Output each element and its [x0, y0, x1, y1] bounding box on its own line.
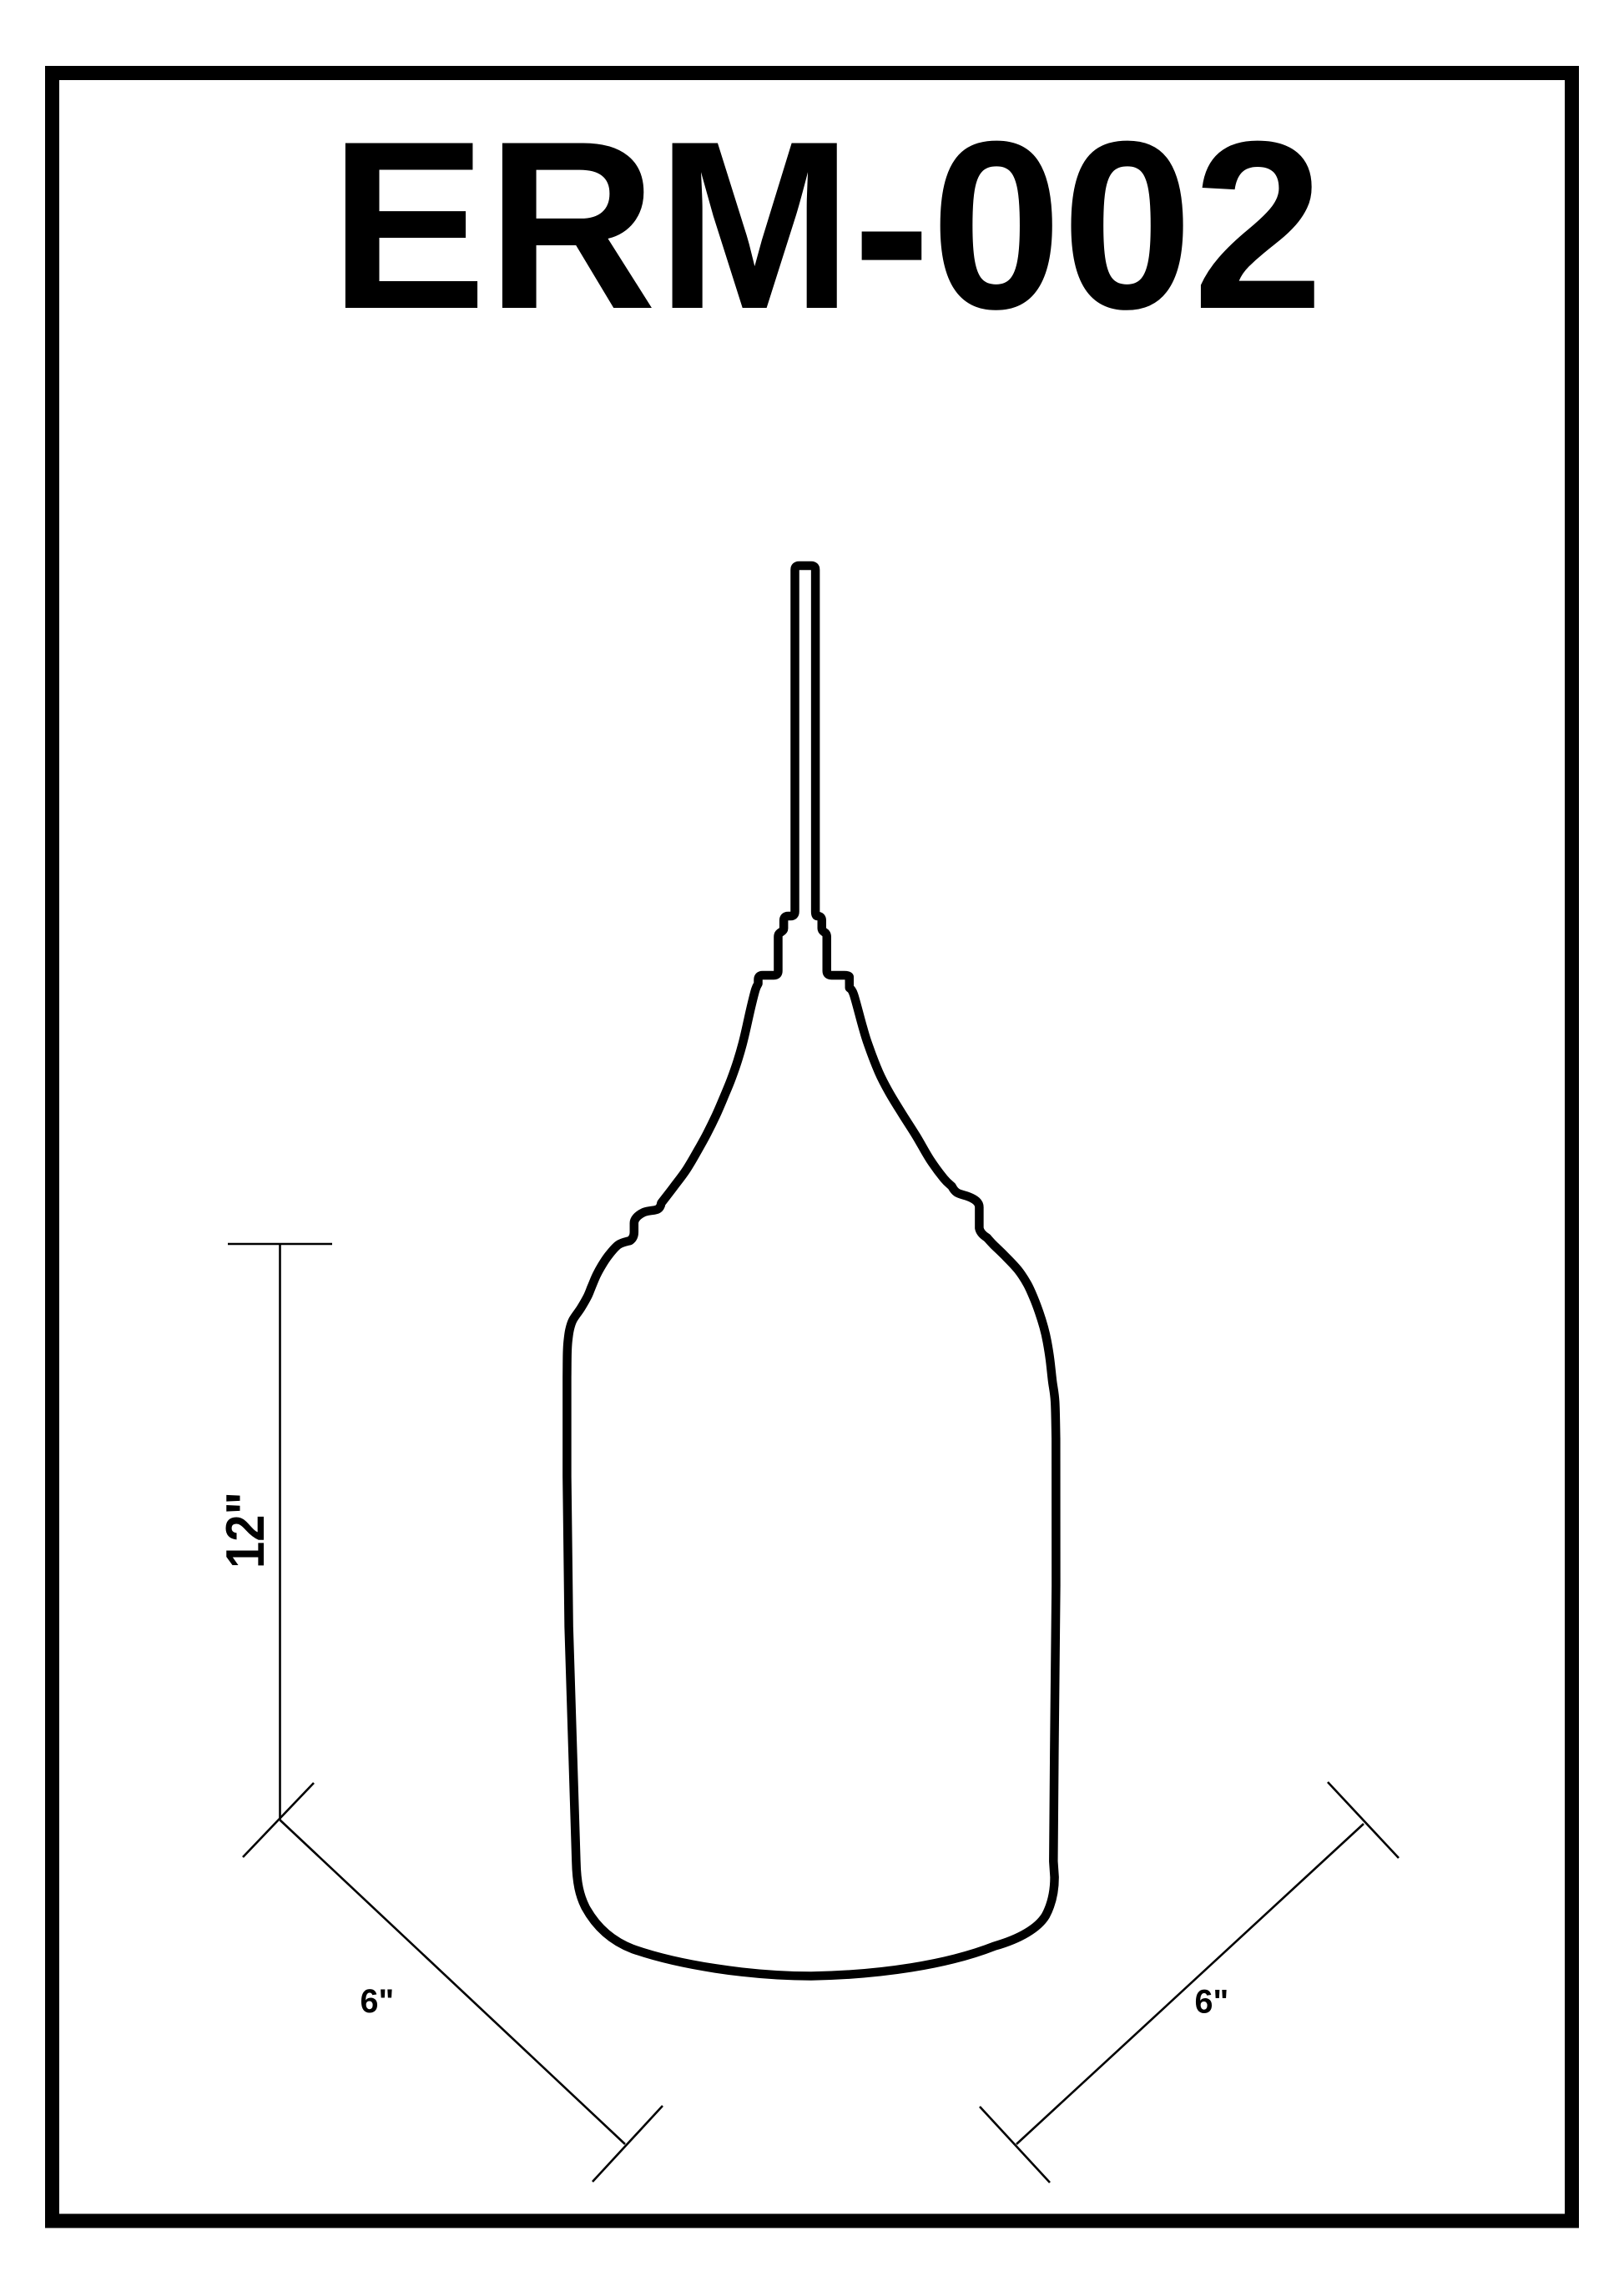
- svg-text:12": 12": [214, 1492, 275, 1568]
- svg-text:6": 6": [361, 1983, 395, 2020]
- svg-text:6": 6": [1195, 1984, 1229, 2021]
- svg-text:ERM-002: ERM-002: [330, 91, 1324, 359]
